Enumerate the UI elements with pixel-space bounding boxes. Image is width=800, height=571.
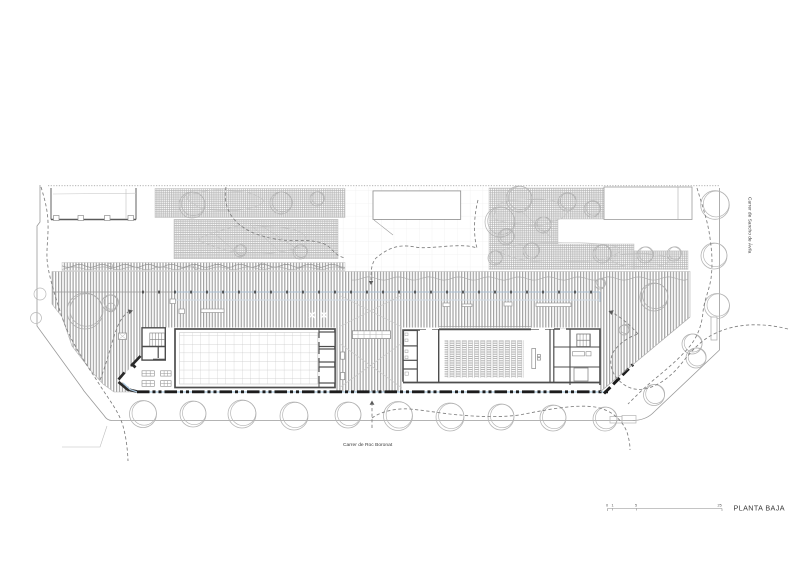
svg-text:PLANTA BAJA: PLANTA BAJA	[734, 504, 785, 513]
svg-text:Carrer de Sancho de Ávila: Carrer de Sancho de Ávila	[747, 197, 754, 254]
svg-text:1: 1	[612, 504, 614, 508]
svg-text:25: 25	[718, 504, 722, 508]
svg-text:Carrer de Roc Boronat: Carrer de Roc Boronat	[343, 442, 393, 448]
svg-text:5: 5	[635, 504, 637, 508]
svg-text:0: 0	[606, 504, 608, 508]
